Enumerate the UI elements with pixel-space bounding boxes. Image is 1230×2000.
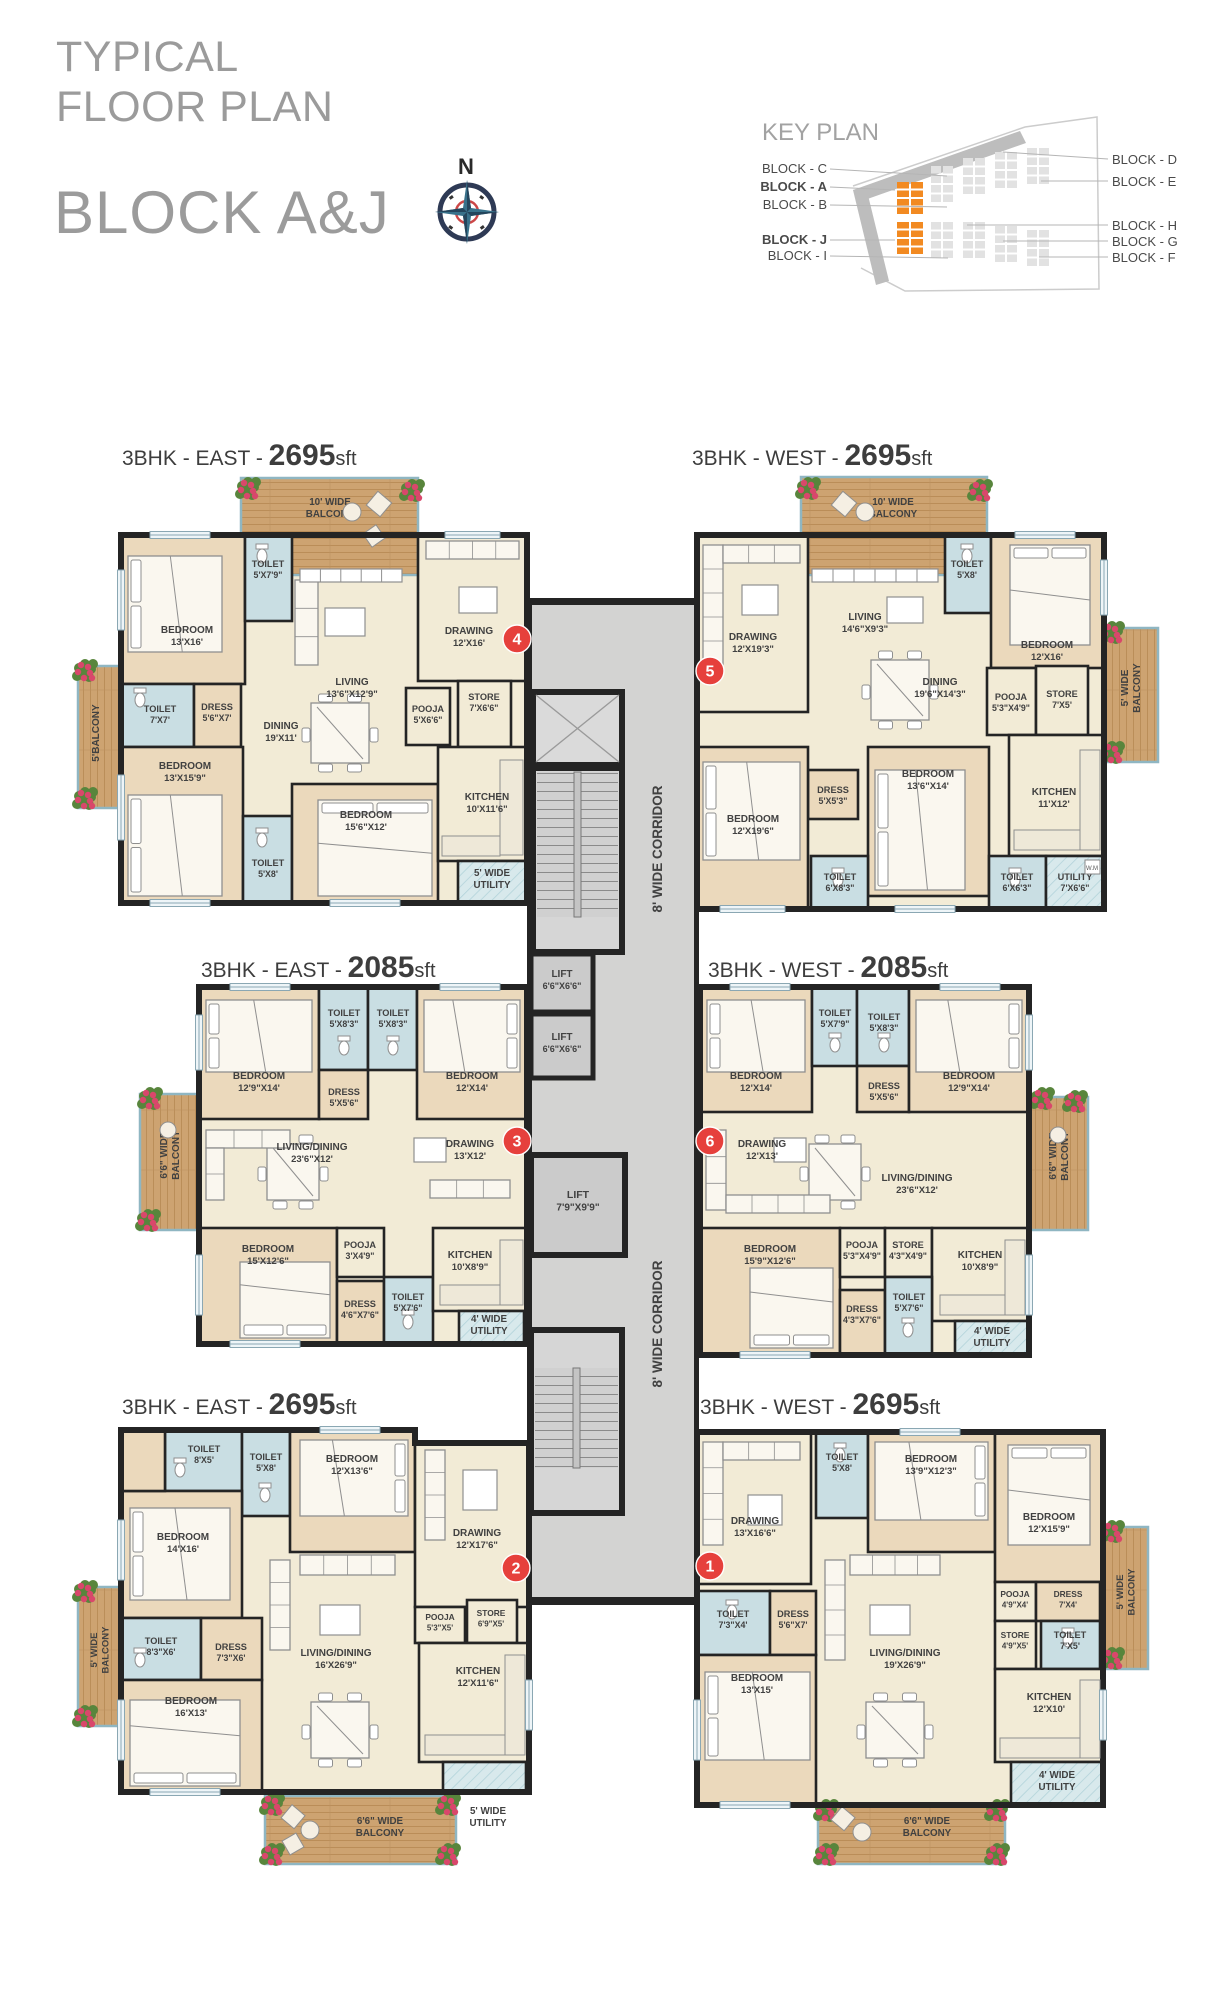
svg-text:POOJA3'X4'9": POOJA3'X4'9" <box>344 1240 377 1261</box>
svg-text:FLOOR PLAN: FLOOR PLAN <box>56 83 333 131</box>
svg-text:DRAWING12'X19'3": DRAWING12'X19'3" <box>729 632 778 655</box>
svg-text:BEDROOM13'6"X14': BEDROOM13'6"X14' <box>902 769 954 792</box>
svg-text:5' WIDEBALCONY: 5' WIDEBALCONY <box>1120 663 1143 713</box>
svg-text:TOILET5'X7'9": TOILET5'X7'9" <box>252 559 285 580</box>
svg-text:DRESS4'3"X7'6": DRESS4'3"X7'6" <box>843 1304 881 1325</box>
svg-text:TOILET7'3"X4': TOILET7'3"X4' <box>717 1609 750 1630</box>
svg-text:BEDROOM12'X13'6": BEDROOM12'X13'6" <box>326 1454 378 1477</box>
svg-text:TOILET5'X7'9": TOILET5'X7'9" <box>819 1008 852 1029</box>
svg-text:BLOCK - C: BLOCK - C <box>762 161 827 176</box>
svg-text:8' WIDE CORRIDOR: 8' WIDE CORRIDOR <box>650 1260 665 1387</box>
svg-text:BLOCK A&J: BLOCK A&J <box>54 179 390 246</box>
svg-text:6'6" WIDEBALCONY: 6'6" WIDEBALCONY <box>356 1816 405 1839</box>
svg-text:KITCHEN10'X8'9": KITCHEN10'X8'9" <box>448 1250 492 1273</box>
svg-text:TYPICAL: TYPICAL <box>56 33 239 81</box>
svg-text:LIVING14'6"X9'3": LIVING14'6"X9'3" <box>842 612 888 635</box>
svg-text:KITCHEN12'X10': KITCHEN12'X10' <box>1027 1692 1071 1715</box>
svg-text:BEDROOM12'X19'6": BEDROOM12'X19'6" <box>727 814 779 837</box>
svg-text:DRAWING12'X17'6": DRAWING12'X17'6" <box>453 1528 502 1551</box>
svg-text:BEDROOM12'9"X14': BEDROOM12'9"X14' <box>943 1071 995 1094</box>
svg-text:W.M: W.M <box>1086 866 1098 872</box>
svg-text:KEY PLAN: KEY PLAN <box>762 119 879 146</box>
svg-text:KITCHEN12'X11'6": KITCHEN12'X11'6" <box>456 1666 500 1689</box>
svg-text:5' WIDEBALCONY: 5' WIDEBALCONY <box>1115 1568 1138 1616</box>
svg-text:UTILITY7'X6'6": UTILITY7'X6'6" <box>1058 872 1093 893</box>
svg-text:BEDROOM13'X15'9": BEDROOM13'X15'9" <box>159 761 211 784</box>
svg-text:TOILET5'X8'3": TOILET5'X8'3" <box>377 1008 410 1029</box>
svg-text:BEDROOM13'9"X12'3": BEDROOM13'9"X12'3" <box>905 1454 957 1477</box>
svg-text:DRESS5'X5'3": DRESS5'X5'3" <box>817 785 849 806</box>
svg-text:POOJA5'3"X4'9": POOJA5'3"X4'9" <box>843 1240 881 1261</box>
svg-text:DRESS5'6"X7': DRESS5'6"X7' <box>201 702 233 723</box>
svg-text:DRAWING13'X16'6": DRAWING13'X16'6" <box>731 1516 780 1539</box>
svg-text:BLOCK - F: BLOCK - F <box>1112 250 1176 265</box>
svg-text:TOILET5'X7'6": TOILET5'X7'6" <box>893 1292 926 1313</box>
svg-text:6'6" WIDEBALCONY: 6'6" WIDEBALCONY <box>903 1816 952 1839</box>
svg-text:DINING19'X11': DINING19'X11' <box>264 721 299 744</box>
svg-text:BEDROOM15'X12'6": BEDROOM15'X12'6" <box>242 1244 294 1267</box>
svg-text:5' WIDEUTILITY: 5' WIDEUTILITY <box>469 1806 506 1829</box>
svg-text:BLOCK - G: BLOCK - G <box>1112 234 1178 249</box>
svg-text:POOJA5'X6'6": POOJA5'X6'6" <box>412 704 445 725</box>
svg-text:TOILET5'X7'6": TOILET5'X7'6" <box>392 1292 425 1313</box>
svg-text:4' WIDEUTILITY: 4' WIDEUTILITY <box>973 1326 1010 1349</box>
svg-text:TOILET5'X8'3": TOILET5'X8'3" <box>868 1012 901 1033</box>
svg-text:BEDROOM12'9"X14': BEDROOM12'9"X14' <box>233 1071 285 1094</box>
svg-text:1: 1 <box>706 1559 715 1576</box>
svg-text:DRESS5'X5'6": DRESS5'X5'6" <box>868 1081 900 1102</box>
svg-text:10' WIDEBALCONY: 10' WIDEBALCONY <box>869 497 918 520</box>
svg-text:KITCHEN10'X11'6": KITCHEN10'X11'6" <box>465 792 509 815</box>
svg-text:5' WIDEBALCONY: 5' WIDEBALCONY <box>89 1626 112 1674</box>
svg-text:POOJA5'3"X4'9": POOJA5'3"X4'9" <box>992 692 1030 713</box>
svg-text:5: 5 <box>706 664 715 681</box>
svg-text:TOILET8'3"X6': TOILET8'3"X6' <box>145 1636 178 1657</box>
svg-text:KITCHEN11'X12': KITCHEN11'X12' <box>1032 787 1076 810</box>
svg-text:5' WIDEUTILITY: 5' WIDEUTILITY <box>473 868 510 891</box>
svg-text:DRESS4'6"X7'6": DRESS4'6"X7'6" <box>341 1299 379 1320</box>
svg-text:BEDROOM15'9"X12'6": BEDROOM15'9"X12'6" <box>744 1244 796 1267</box>
svg-text:N: N <box>458 154 474 179</box>
svg-text:BLOCK - H: BLOCK - H <box>1112 218 1177 233</box>
svg-text:BLOCK - A: BLOCK - A <box>760 179 827 194</box>
svg-text:TOILET6'X8'3": TOILET6'X8'3" <box>824 872 857 893</box>
svg-text:BEDROOM12'X15'9": BEDROOM12'X15'9" <box>1023 1512 1075 1535</box>
svg-text:6: 6 <box>706 1134 715 1151</box>
svg-text:3: 3 <box>513 1134 522 1151</box>
svg-text:DRESS5'X5'6": DRESS5'X5'6" <box>328 1087 360 1108</box>
svg-text:5'BALCONY: 5'BALCONY <box>91 704 102 762</box>
svg-text:4' WIDEUTILITY: 4' WIDEUTILITY <box>1038 1770 1075 1793</box>
svg-text:DRESS5'6"X7': DRESS5'6"X7' <box>777 1609 809 1630</box>
svg-text:STORE7'X6'6": STORE7'X6'6" <box>468 692 499 713</box>
svg-text:DRESS7'3"X6': DRESS7'3"X6' <box>215 1642 247 1663</box>
svg-text:STORE4'3"X4'9": STORE4'3"X4'9" <box>889 1240 927 1261</box>
svg-text:TOILET5'X8'3": TOILET5'X8'3" <box>328 1008 361 1029</box>
svg-text:BLOCK - B: BLOCK - B <box>763 197 827 212</box>
svg-text:8' WIDE CORRIDOR: 8' WIDE CORRIDOR <box>650 785 665 912</box>
svg-text:2: 2 <box>512 1561 521 1578</box>
svg-text:BLOCK - J: BLOCK - J <box>762 232 827 247</box>
svg-text:BLOCK - E: BLOCK - E <box>1112 174 1177 189</box>
svg-text:TOILET6'X6'3": TOILET6'X6'3" <box>1001 872 1034 893</box>
svg-text:KITCHEN10'X8'9": KITCHEN10'X8'9" <box>958 1250 1002 1273</box>
svg-text:4: 4 <box>513 632 522 649</box>
svg-text:BLOCK - D: BLOCK - D <box>1112 152 1177 167</box>
svg-text:BLOCK - I: BLOCK - I <box>768 248 827 263</box>
svg-text:4' WIDEUTILITY: 4' WIDEUTILITY <box>470 1314 507 1337</box>
svg-text:BEDROOM15'6"X12': BEDROOM15'6"X12' <box>340 810 392 833</box>
